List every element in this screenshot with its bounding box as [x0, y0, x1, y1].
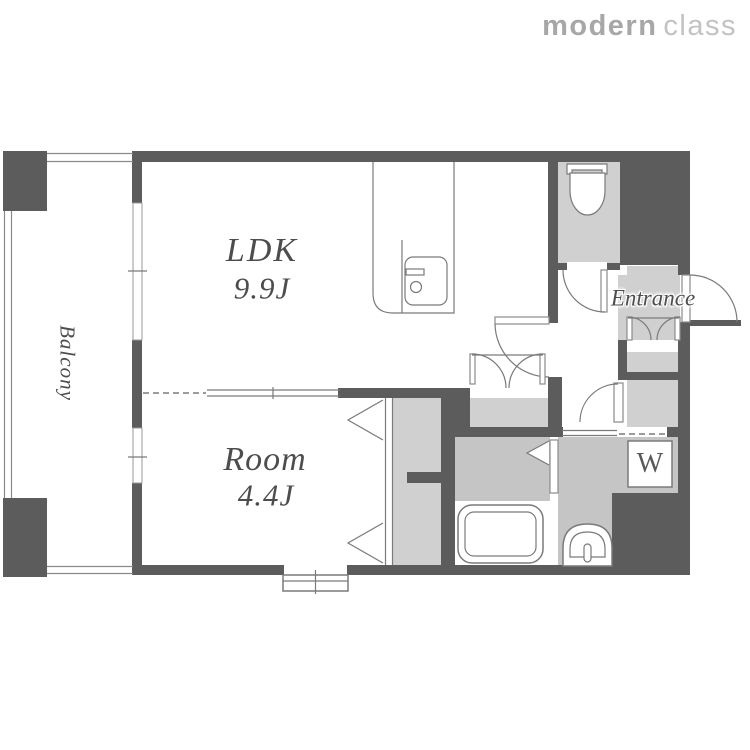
bathroom-floor	[452, 437, 550, 501]
bathtub	[458, 505, 543, 563]
shoe-cabinet-lower	[627, 380, 680, 427]
brand-logo-light: class	[663, 10, 737, 42]
room-sliding-door	[207, 387, 340, 399]
balcony-pillar-bottom	[3, 498, 47, 577]
room-size-label: 4.4J	[238, 480, 295, 511]
washbasin	[563, 524, 612, 566]
room-window	[133, 428, 142, 483]
ldk-double-door	[470, 354, 545, 388]
closet-front-track	[386, 398, 393, 565]
corridor-floor	[470, 398, 550, 427]
room-label: Room	[223, 443, 306, 477]
washing-machine-label: W	[637, 450, 663, 478]
brand-logo: modernclass	[542, 10, 737, 43]
toilet-door	[563, 270, 607, 312]
hall-storage-door	[580, 383, 623, 422]
entrance-label: Entrance	[611, 287, 695, 310]
hall-washroom-sliding-door	[562, 431, 617, 436]
balcony-pillar-top	[3, 151, 47, 211]
floorplan-drawing	[0, 0, 750, 750]
floorplan-page: Balcony LDK 9.9J Room 4.4J Entrance W mo…	[0, 0, 750, 750]
kitchen-sink	[405, 257, 447, 305]
closet-bifold-doors	[348, 400, 383, 563]
ldk-label: LDK	[226, 234, 298, 268]
balcony-label: Balcony	[57, 325, 78, 401]
shoe-cabinet-upper	[627, 352, 680, 372]
ldk-size-label: 9.9J	[234, 273, 291, 304]
brand-logo-bold: modern	[542, 10, 657, 42]
